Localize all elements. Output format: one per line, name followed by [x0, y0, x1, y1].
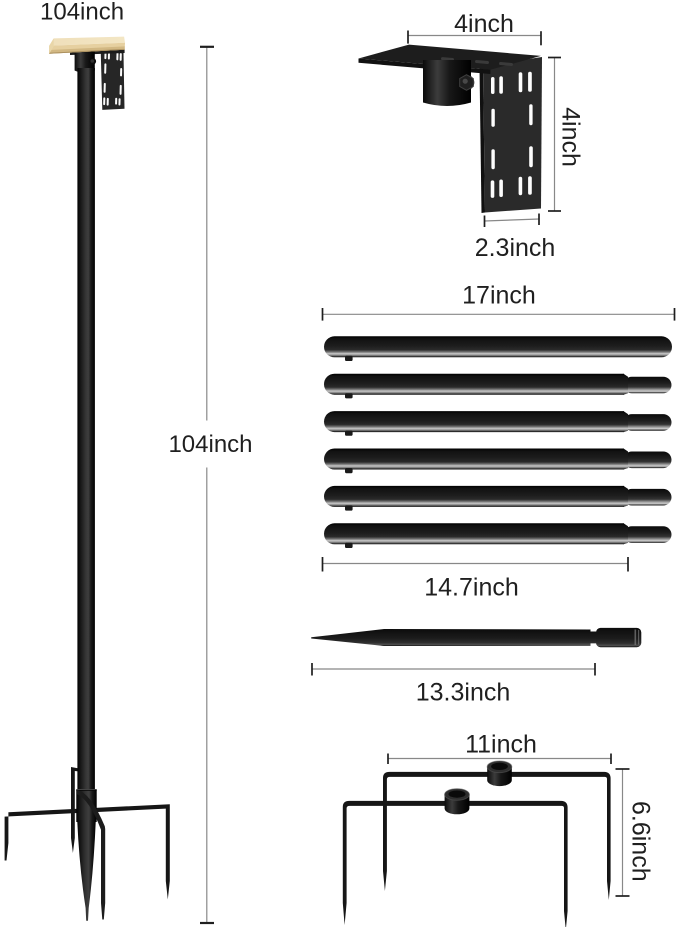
svg-text:17inch: 17inch — [462, 282, 536, 310]
svg-text:13.3inch: 13.3inch — [416, 679, 511, 707]
svg-text:14.7inch: 14.7inch — [424, 574, 519, 602]
svg-text:6.6inch: 6.6inch — [627, 801, 655, 882]
svg-text:11inch: 11inch — [465, 731, 537, 759]
svg-text:104inch: 104inch — [168, 431, 252, 458]
svg-text:104inch: 104inch — [40, 0, 124, 26]
svg-text:4inch: 4inch — [454, 10, 514, 38]
svg-text:4inch: 4inch — [557, 107, 585, 167]
svg-text:2.3inch: 2.3inch — [475, 234, 556, 262]
